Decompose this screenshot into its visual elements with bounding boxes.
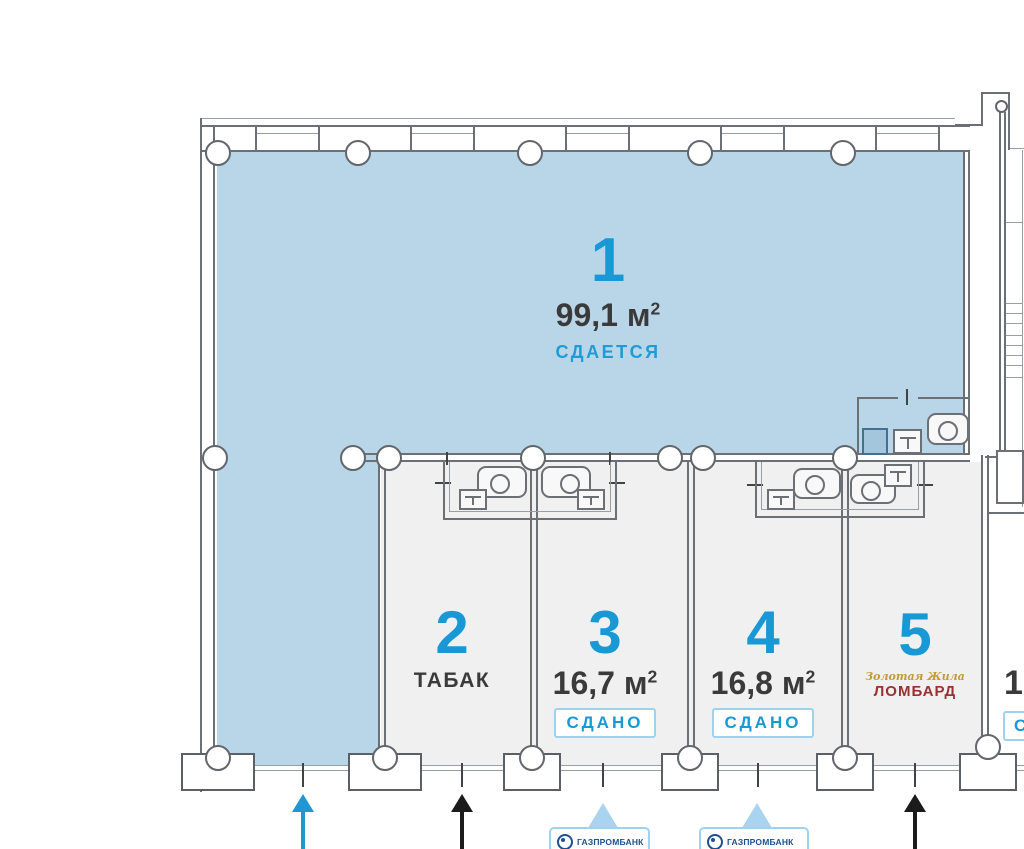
area-sup: 2 <box>648 666 658 686</box>
wall-line <box>200 125 970 127</box>
stair-tread <box>1006 313 1022 314</box>
area-value: 16,8 <box>711 665 773 701</box>
bathroom-1-wall <box>918 397 970 399</box>
sink-icon <box>793 468 841 499</box>
stair-tread <box>1006 355 1022 356</box>
unit-2-tenant: ТАБАК <box>377 670 527 691</box>
shower-icon <box>862 428 888 455</box>
column-marker <box>372 745 398 771</box>
column-marker-small <box>995 100 1008 113</box>
bathroom-1-wall <box>857 397 859 455</box>
entrance-axis-marker <box>914 763 916 787</box>
entrance-arrow-black-shaft <box>913 811 917 849</box>
sink-basin-icon <box>805 475 825 495</box>
entrance-arrow-black-icon <box>451 794 473 812</box>
atm-triangle-icon <box>742 803 772 828</box>
stair-tread <box>1006 323 1022 324</box>
column-marker <box>520 445 546 471</box>
area-unit: м <box>782 665 806 701</box>
wall-line <box>981 92 983 126</box>
wall-line <box>963 150 965 455</box>
column-marker <box>677 745 703 771</box>
gazprombank-logo-icon <box>557 834 573 849</box>
window-divider <box>628 125 630 152</box>
stair-tread <box>1006 345 1022 346</box>
column-marker <box>376 445 402 471</box>
stair-landing <box>996 450 1024 504</box>
gazprombank-label: ГАЗПРОМБАНК <box>727 837 794 847</box>
unit-3-area: 16,7 м2 <box>530 667 680 699</box>
column-marker <box>340 445 366 471</box>
unit-1-label: 1 99,1 м2 СДАЕТСЯ <box>508 232 708 363</box>
entrance-arrow-black-shaft <box>460 811 464 849</box>
unit-1-area: 99,1 м2 <box>508 299 708 331</box>
column-marker <box>657 445 683 471</box>
sink-basin-icon <box>938 421 958 441</box>
area-sup: 2 <box>651 298 661 318</box>
wall-line <box>1008 92 1010 150</box>
toilet-icon <box>459 489 487 510</box>
wall-line-thin <box>200 118 955 119</box>
sink-basin-icon <box>490 474 510 494</box>
window-divider <box>255 125 257 152</box>
floor-plan: 1 99,1 м2 СДАЕТСЯ 2 ТАБАК 3 16,7 м2 СДАН… <box>0 0 1024 849</box>
window-divider <box>720 125 722 152</box>
unit-3-label: 3 16,7 м2 СДАНО <box>530 604 680 738</box>
unit-1-room-extension[interactable] <box>217 453 378 766</box>
area-value: 99,1 <box>556 297 618 333</box>
unit-5-tenant: ЛОМБАРД <box>842 683 988 701</box>
atm-triangle-icon <box>588 803 618 828</box>
window-divider <box>783 125 785 152</box>
wall-line-thin <box>1008 148 1024 149</box>
entrance-arrow-black-icon <box>904 794 926 812</box>
unit-4-label: 4 16,8 м2 СДАНО <box>688 604 838 738</box>
column-marker <box>690 445 716 471</box>
wall-line <box>981 92 1008 94</box>
unit-5-number: 5 <box>842 606 988 663</box>
wall-line <box>955 124 982 126</box>
window-sill <box>410 133 473 134</box>
column-marker <box>202 445 228 471</box>
unit-2-label: 2 ТАБАК <box>377 604 527 691</box>
column-marker <box>205 140 231 166</box>
window-sill <box>565 133 628 134</box>
unit-2-number: 2 <box>377 604 527 661</box>
window-divider <box>473 125 475 152</box>
window-divider <box>565 125 567 152</box>
window-sill <box>875 133 938 134</box>
column-marker <box>975 734 1001 760</box>
unit-1-number: 1 <box>508 232 708 291</box>
gazprombank-atm-badge[interactable]: ГАЗПРОМБАНК <box>549 827 650 849</box>
area-unit: м <box>624 665 648 701</box>
column-marker <box>519 745 545 771</box>
toilet-icon <box>884 464 912 487</box>
entrance-axis-marker <box>602 763 604 787</box>
unit-5-label: 5 Золотая Жила ЛОМБАРД <box>842 606 988 701</box>
window-divider <box>318 125 320 152</box>
column-marker <box>205 745 231 771</box>
wall-line <box>968 150 970 455</box>
wall-line <box>1004 112 1006 457</box>
unit-1-status: СДАЕТСЯ <box>508 342 708 363</box>
unit-3-number: 3 <box>530 604 680 661</box>
column-marker <box>687 140 713 166</box>
column-marker <box>517 140 543 166</box>
stair-tread <box>1006 365 1022 366</box>
unit-5-brand-script: Золотая Жила <box>842 671 988 683</box>
area-value: 16,7 <box>553 665 615 701</box>
door-marker <box>906 389 908 405</box>
toilet-icon <box>893 429 922 454</box>
entrance-arrow-blue-icon <box>292 794 314 812</box>
area-unit: м <box>627 297 651 333</box>
window-divider <box>875 125 877 152</box>
wall-line-thin <box>200 765 1024 766</box>
toilet-icon <box>767 489 795 510</box>
window-sill <box>720 133 783 134</box>
unit-4-number: 4 <box>688 604 838 661</box>
sink-basin-icon <box>861 481 881 501</box>
stair-tread <box>1006 335 1022 336</box>
column-marker <box>832 445 858 471</box>
column-marker <box>832 745 858 771</box>
area-sup: 2 <box>806 666 816 686</box>
wall-line-thin <box>200 770 1024 771</box>
gazprombank-label: ГАЗПРОМБАНК <box>577 837 644 847</box>
gazprombank-atm-badge[interactable]: ГАЗПРОМБАНК <box>699 827 809 849</box>
unit-4-area: 16,8 м2 <box>688 667 838 699</box>
wall-line <box>988 512 1024 514</box>
bathroom-1-wall <box>858 397 898 399</box>
column-marker <box>830 140 856 166</box>
unit-3-status-badge: СДАНО <box>554 708 657 738</box>
sink-icon <box>927 413 969 445</box>
stair-tread <box>1006 377 1022 378</box>
entrance-axis-marker <box>302 763 304 787</box>
column-marker <box>345 140 371 166</box>
gazprombank-logo-icon <box>707 834 723 849</box>
toilet-icon <box>577 489 605 510</box>
entrance-arrow-blue-shaft <box>301 811 305 849</box>
entrance-axis-marker <box>461 763 463 787</box>
window-divider <box>938 125 940 152</box>
stair-tread <box>1006 303 1022 304</box>
stair-tread <box>1006 222 1022 223</box>
unit-6-area-partial: 1 <box>1004 666 1023 700</box>
entrance-axis-marker <box>757 763 759 787</box>
unit-4-status-badge: СДАНО <box>712 708 815 738</box>
unit-6-status-badge-partial: С <box>1003 711 1024 741</box>
window-divider <box>410 125 412 152</box>
wall-line <box>999 112 1001 457</box>
window-sill <box>255 133 318 134</box>
